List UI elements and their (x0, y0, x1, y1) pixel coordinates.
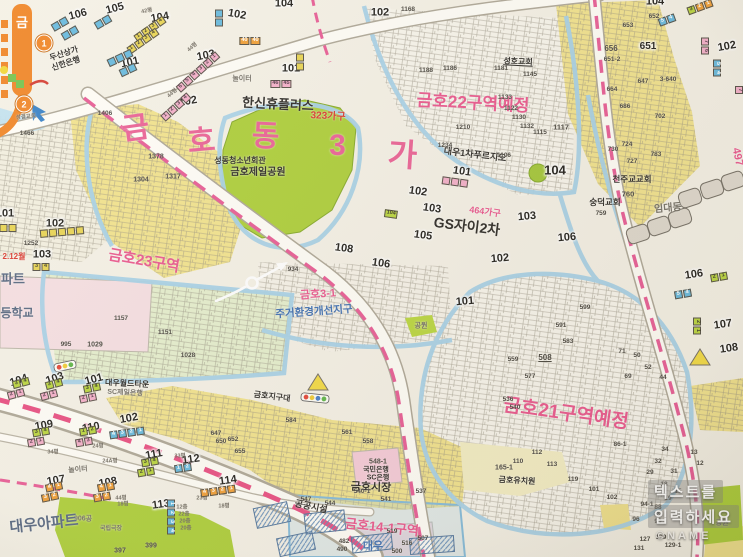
map-photo: { "map_title": "금호동3가 재개발구역 안내 지도", "col… (0, 0, 743, 557)
hand-drawn-annotation (0, 0, 743, 557)
